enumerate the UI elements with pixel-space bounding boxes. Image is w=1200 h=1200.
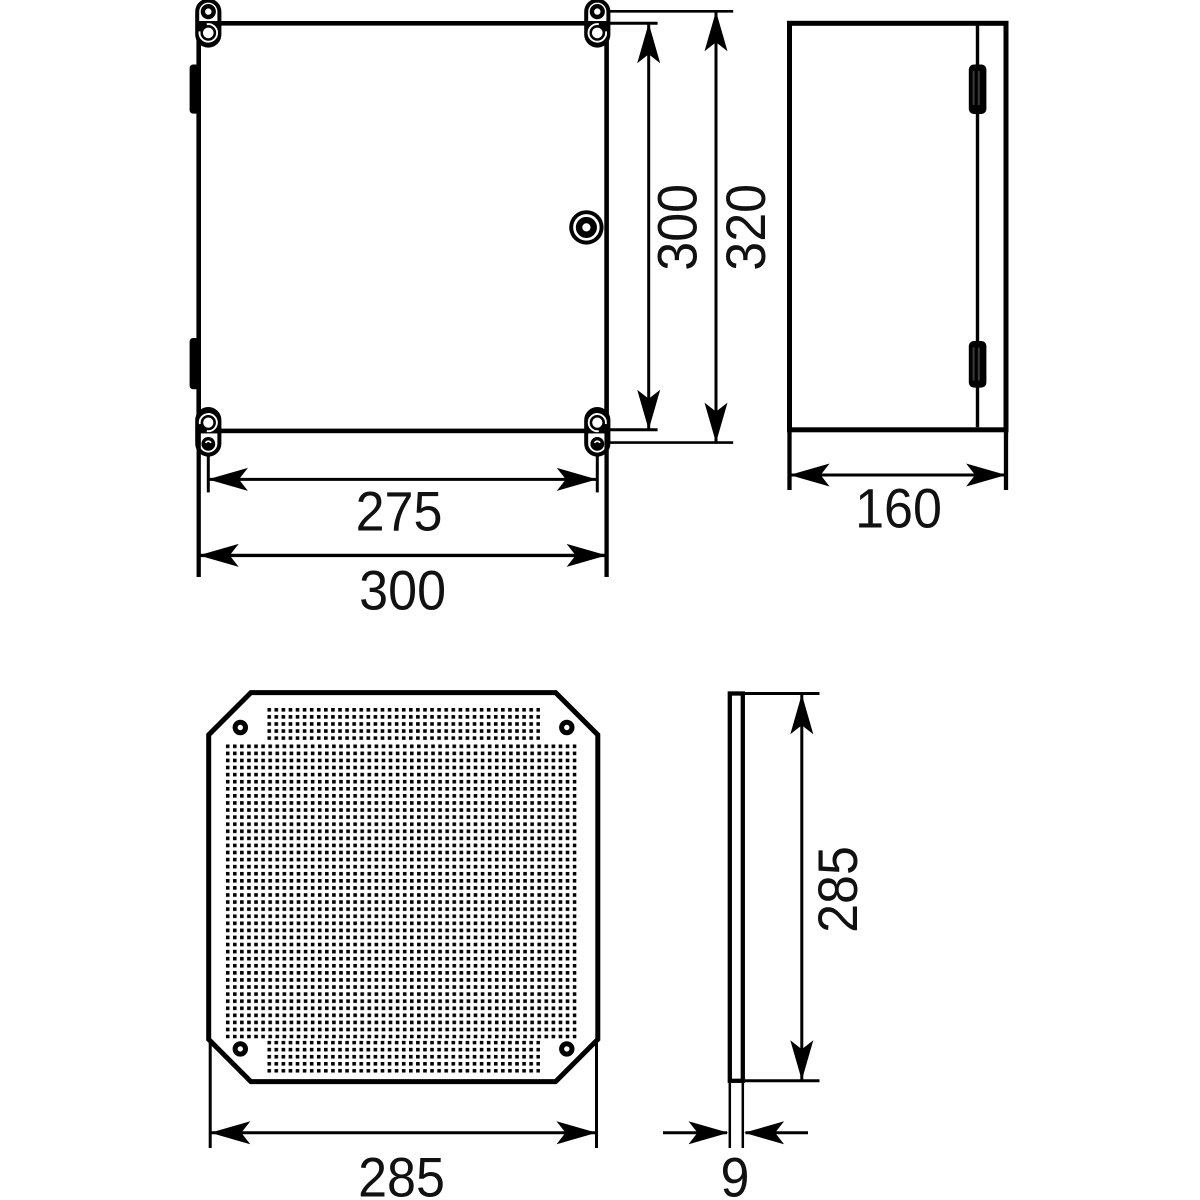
svg-text:300: 300 (647, 184, 709, 271)
svg-text:320: 320 (715, 184, 777, 271)
svg-text:285: 285 (808, 846, 870, 933)
svg-text:285: 285 (358, 1147, 445, 1200)
svg-text:275: 275 (356, 481, 443, 543)
svg-text:300: 300 (359, 560, 446, 622)
svg-text:9: 9 (721, 1147, 750, 1200)
svg-text:160: 160 (855, 478, 942, 540)
